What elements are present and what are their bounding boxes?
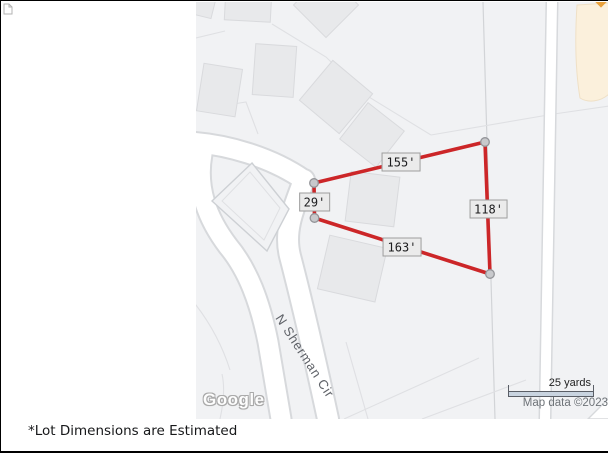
broken-image-icon: [3, 3, 14, 15]
dimension-label-left: 29': [299, 193, 331, 212]
lot-vertex-marker: [486, 270, 495, 279]
commercial-area-polygon: [576, 3, 608, 101]
map-canvas[interactable]: 155' 29' 118' 163' N Sherman Cir Google …: [196, 2, 608, 419]
caption-text: *Lot Dimensions are Estimated: [28, 422, 237, 440]
dimension-label-right: 118': [469, 200, 508, 219]
dimension-label-bottom: 163': [383, 237, 422, 256]
lot-vertex-marker: [481, 138, 490, 147]
google-logo[interactable]: Google: [203, 390, 265, 410]
lot-map-page: 155' 29' 118' 163' N Sherman Cir Google …: [0, 0, 608, 453]
scale-tick-right: [593, 385, 594, 392]
lot-vertex-marker: [310, 179, 319, 188]
map-scale: 25 yards: [508, 377, 594, 397]
scale-tick-left: [508, 385, 509, 392]
map-graphics: [196, 2, 608, 419]
dimension-label-top: 155': [382, 153, 421, 172]
map-attribution: Map data ©2023: [523, 397, 608, 409]
lot-vertex-marker: [310, 214, 319, 223]
scale-label: 25 yards: [508, 377, 594, 390]
